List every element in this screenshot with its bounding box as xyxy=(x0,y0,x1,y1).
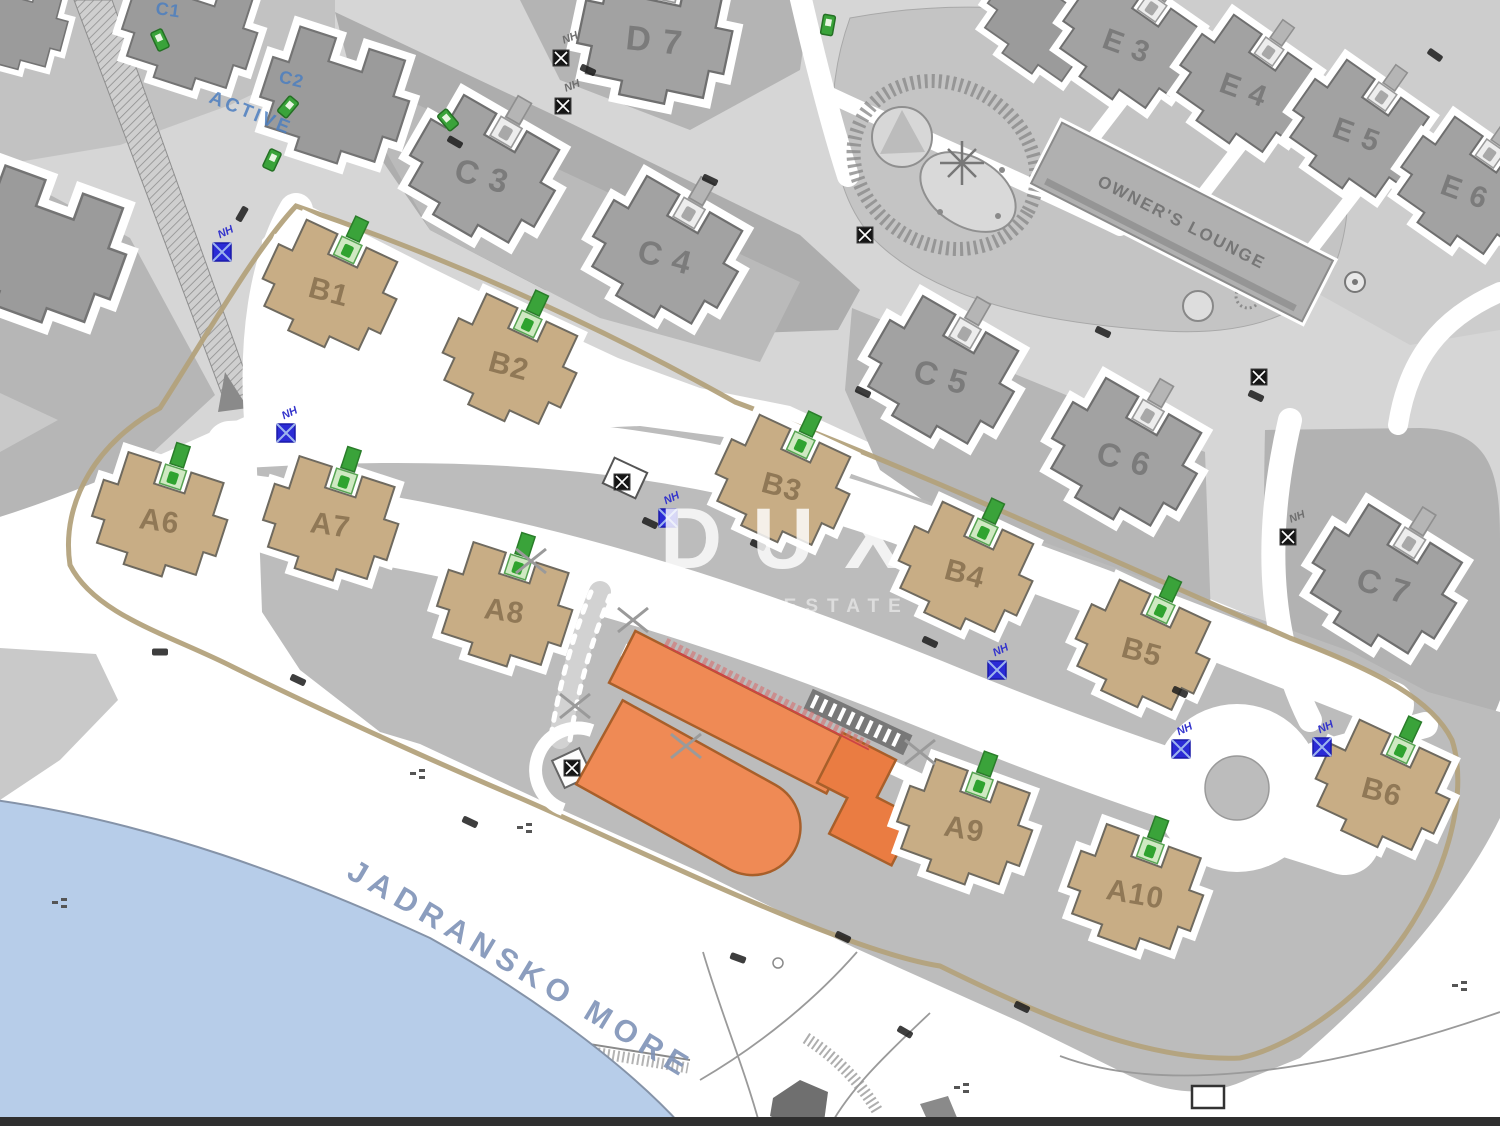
green-path-marker-icon xyxy=(820,14,835,36)
green-marker-dot xyxy=(825,19,832,27)
shore-circle xyxy=(773,958,783,968)
car-mark xyxy=(152,649,168,656)
bottom-edge-bar xyxy=(0,1117,1500,1126)
watermark-title: DUX xyxy=(660,491,932,587)
bench-b xyxy=(526,823,532,826)
round-feature-dot xyxy=(1352,279,1358,285)
bench-c xyxy=(419,776,425,779)
car-mark-body xyxy=(152,649,168,656)
black-utility-marker-icon xyxy=(614,474,630,490)
bench-a xyxy=(954,1086,960,1089)
black-utility-marker-icon xyxy=(564,760,580,776)
bench-b xyxy=(1461,981,1467,984)
building-label-A8: A8 xyxy=(482,592,527,630)
bench-a xyxy=(410,772,416,775)
bench-c xyxy=(526,830,532,833)
bench-b xyxy=(963,1083,969,1086)
bench-c xyxy=(1461,988,1467,991)
bench-c xyxy=(61,905,67,908)
building-label-A9: A9 xyxy=(941,810,986,850)
bench-c xyxy=(963,1090,969,1093)
garden-dot-2 xyxy=(995,213,1001,219)
black-utility-marker-icon xyxy=(857,227,873,243)
bench-b xyxy=(419,769,425,772)
bench-b xyxy=(61,898,67,901)
shore-marker-rect xyxy=(1192,1086,1224,1108)
building-label-A7: A7 xyxy=(308,506,353,544)
building-label-A6: A6 xyxy=(137,502,182,540)
garden-pond xyxy=(1183,291,1213,321)
garden-dot-3 xyxy=(999,167,1005,173)
black-utility-marker-icon xyxy=(1251,369,1267,385)
area-label-c1: C1 xyxy=(154,0,182,21)
garden-dot-1 xyxy=(937,209,943,215)
building-label-D7: D 7 xyxy=(624,19,685,63)
watermark: DUX REAL ESTATE xyxy=(660,491,932,617)
bench-a xyxy=(52,901,58,904)
bench-a xyxy=(517,826,523,829)
watermark-subtitle: REAL ESTATE xyxy=(682,596,910,617)
bench-a xyxy=(1452,984,1458,987)
site-plan-svg: OWNER'S LOUNGE D 7C 3C 4C 5C 6C 7E 3E 4E… xyxy=(0,0,1500,1126)
site-plan-map: OWNER'S LOUNGE D 7C 3C 4C 5C 6C 7E 3E 4E… xyxy=(0,0,1500,1126)
